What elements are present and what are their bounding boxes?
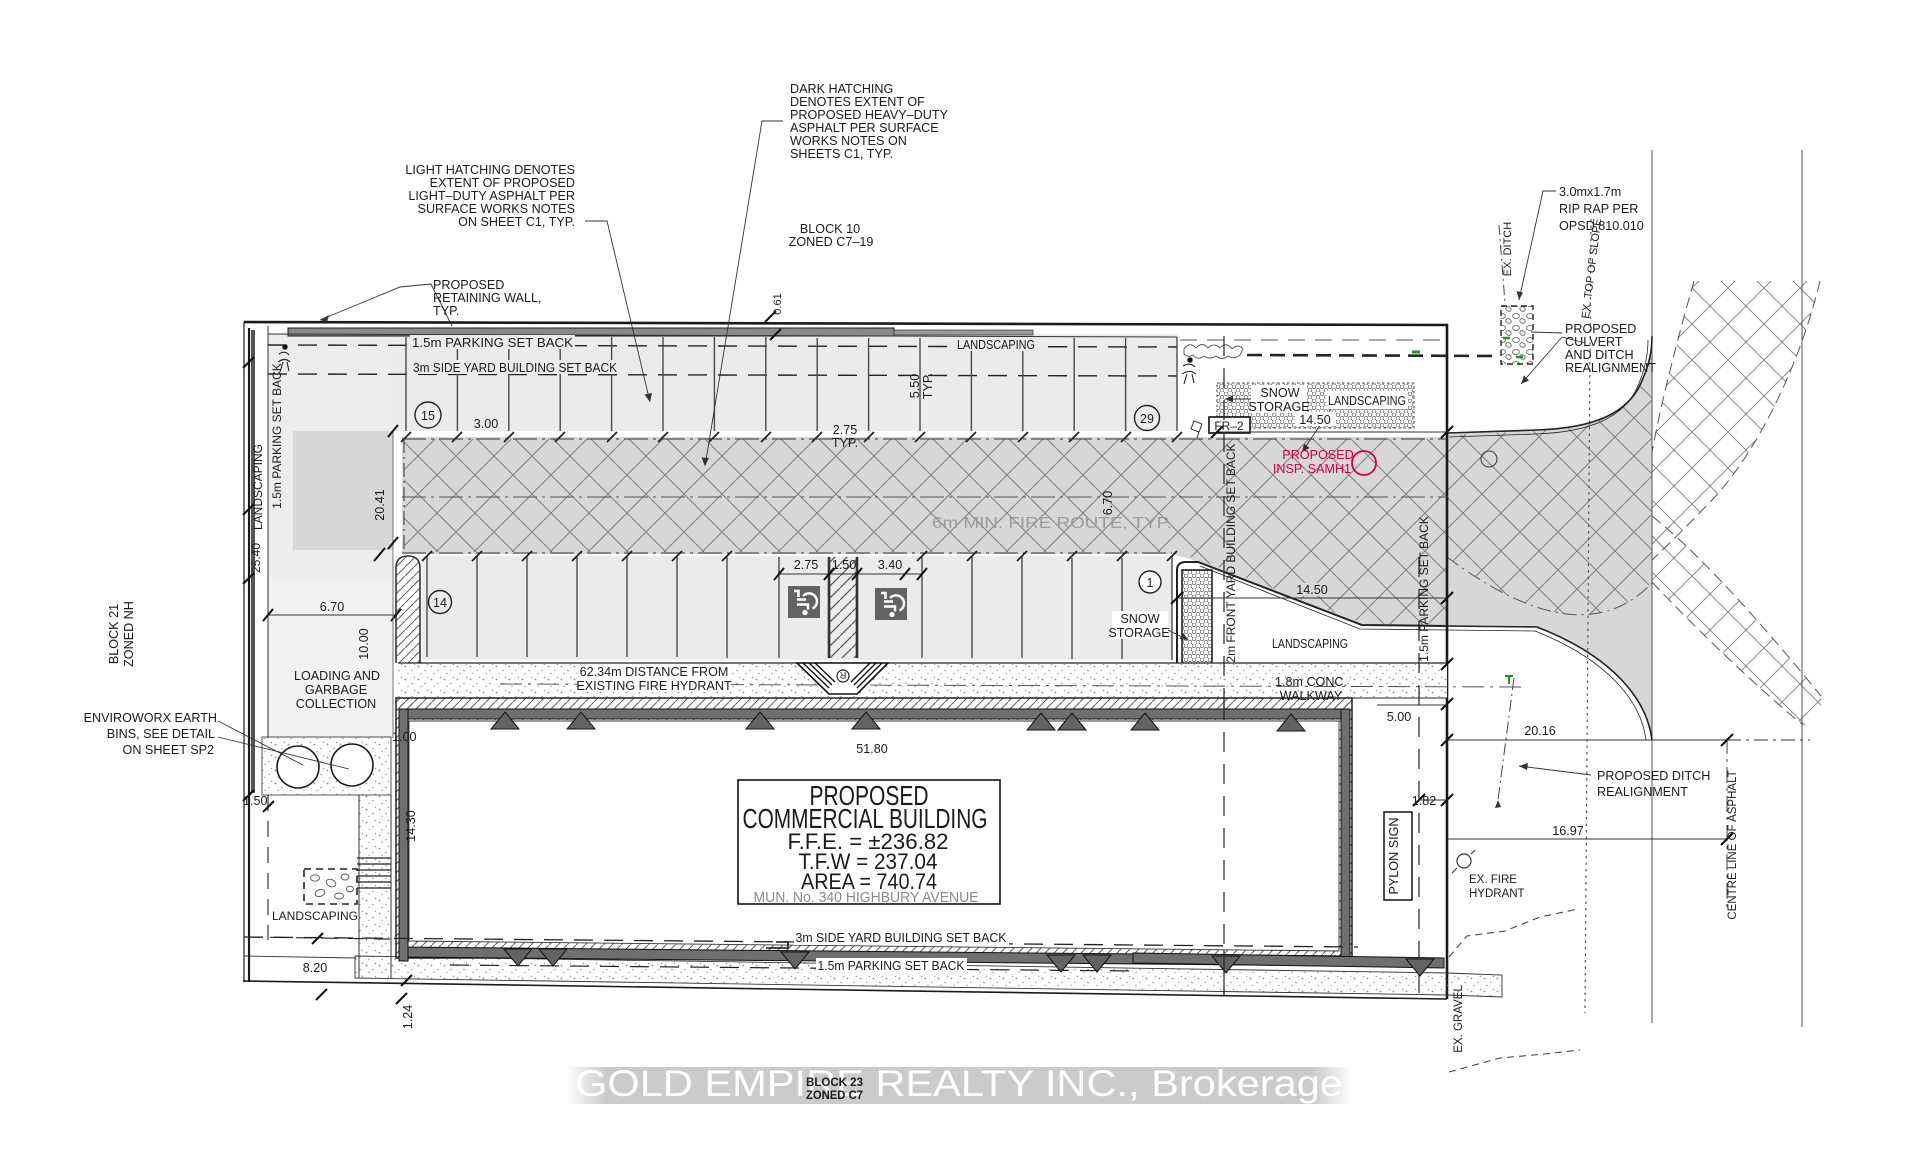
svg-text:LANDSCAPING: LANDSCAPING bbox=[1328, 394, 1406, 408]
svg-text:15: 15 bbox=[421, 409, 435, 423]
svg-text:LIGHT–DUTY ASPHALT PER: LIGHT–DUTY ASPHALT PER bbox=[408, 189, 575, 203]
svg-text:STORAGE: STORAGE bbox=[1248, 400, 1309, 414]
svg-text:CENTRE LINE OF ASPHALT: CENTRE LINE OF ASPHALT bbox=[1727, 770, 1739, 919]
svg-text:LIGHT HATCHING DENOTES: LIGHT HATCHING DENOTES bbox=[405, 163, 575, 177]
svg-text:2m FRONT YARD BUILDING SET: 2m FRONT YARD BUILDING SET BACK bbox=[1224, 443, 1238, 662]
svg-text:REALIGNMENT: REALIGNMENT bbox=[1597, 785, 1688, 799]
svg-text:RETAINING WALL,: RETAINING WALL, bbox=[433, 291, 541, 305]
svg-text:BLOCK 10: BLOCK 10 bbox=[800, 222, 860, 236]
svg-text:ENVIROWORX EARTH: ENVIROWORX EARTH bbox=[84, 711, 217, 725]
svg-text:EXTENT OF PROPOSED: EXTENT OF PROPOSED bbox=[430, 176, 575, 190]
svg-text:EX. DITCH: EX. DITCH bbox=[1502, 222, 1514, 276]
svg-text:20.16: 20.16 bbox=[1524, 724, 1556, 738]
svg-text:62.34m DISTANCE FROM: 62.34m DISTANCE FROM bbox=[580, 665, 729, 679]
svg-text:GARBAGE: GARBAGE bbox=[305, 683, 367, 697]
svg-text:BLOCK 23: BLOCK 23 bbox=[806, 1075, 863, 1089]
svg-text:3m SIDE YARD BUILDING SET: 3m SIDE YARD BUILDING SET BACK bbox=[796, 931, 1008, 945]
svg-text:1.00: 1.00 bbox=[392, 730, 417, 744]
svg-text:5.00: 5.00 bbox=[1387, 710, 1412, 724]
svg-text:FR–2: FR–2 bbox=[1214, 419, 1244, 433]
svg-text:1.5m PARKING SET BACK: 1.5m PARKING SET BACK bbox=[818, 959, 966, 973]
svg-text:14.50: 14.50 bbox=[1296, 583, 1328, 597]
svg-text:20.41: 20.41 bbox=[373, 489, 387, 521]
svg-text:PROPOSED HEAVY–DUTY: PROPOSED HEAVY–DUTY bbox=[790, 108, 949, 122]
svg-text:R: R bbox=[839, 670, 846, 680]
svg-text:EX. GRAVEL: EX. GRAVEL bbox=[1453, 985, 1465, 1053]
svg-text:ZONED NH: ZONED NH bbox=[122, 601, 136, 667]
svg-text:ON SHEET SP2: ON SHEET SP2 bbox=[123, 743, 214, 757]
svg-text:10.00: 10.00 bbox=[357, 628, 371, 660]
svg-text:1.5m PARKING SET BACK: 1.5m PARKING SET BACK bbox=[412, 336, 574, 350]
svg-text:ON SHEET C1, TYP.: ON SHEET C1, TYP. bbox=[458, 215, 575, 229]
svg-text:PROPOSED: PROPOSED bbox=[1282, 448, 1353, 462]
svg-text:WORKS NOTES ON: WORKS NOTES ON bbox=[790, 134, 907, 148]
svg-text:SNOW: SNOW bbox=[1260, 386, 1299, 400]
svg-text:INSP. SAMH1: INSP. SAMH1 bbox=[1273, 462, 1351, 476]
svg-text:1.50: 1.50 bbox=[832, 558, 857, 572]
svg-text:EXISTING FIRE HYDRANT: EXISTING FIRE HYDRANT bbox=[576, 679, 732, 693]
svg-text:2.75: 2.75 bbox=[794, 558, 819, 572]
svg-text:14.50: 14.50 bbox=[1299, 413, 1331, 427]
svg-text:1.50: 1.50 bbox=[243, 794, 268, 808]
svg-text:2.75: 2.75 bbox=[833, 423, 858, 437]
svg-text:ASPHALT PER SURFACE: ASPHALT PER SURFACE bbox=[790, 121, 939, 135]
svg-text:LANDSCAPING: LANDSCAPING bbox=[1272, 637, 1348, 651]
svg-text:0.61: 0.61 bbox=[772, 293, 784, 314]
svg-text:3.0mx1.7m: 3.0mx1.7m bbox=[1559, 185, 1621, 199]
svg-text:DARK HATCHING: DARK HATCHING bbox=[790, 82, 893, 96]
svg-text:GOLD EMPIRE REALTY INC., Broke: GOLD EMPIRE REALTY INC., Brokerage bbox=[575, 1063, 1343, 1104]
svg-text:5.50: 5.50 bbox=[908, 374, 922, 399]
svg-text:14: 14 bbox=[433, 596, 447, 610]
svg-text:TYP.: TYP. bbox=[921, 373, 935, 399]
svg-text:TYP.: TYP. bbox=[832, 436, 858, 450]
svg-text:EX. FIRE: EX. FIRE bbox=[1469, 874, 1517, 886]
svg-text:PROPOSED: PROPOSED bbox=[1565, 322, 1636, 336]
svg-text:1.5m PARKING SET BACK: 1.5m PARKING SET BACK bbox=[270, 363, 284, 509]
svg-text:6m MIN. FIRE ROUTE, TYP.: 6m MIN. FIRE ROUTE, TYP. bbox=[932, 515, 1172, 532]
svg-text:1.5m PARKING SET BACK: 1.5m PARKING SET BACK bbox=[1417, 516, 1431, 662]
svg-text:HYDRANT: HYDRANT bbox=[1469, 888, 1525, 900]
svg-text:CULVERT: CULVERT bbox=[1565, 335, 1623, 349]
svg-text:LANDSCAPING: LANDSCAPING bbox=[251, 444, 265, 530]
svg-text:1.8m CONC.: 1.8m CONC. bbox=[1275, 675, 1347, 689]
svg-text:25.40: 25.40 bbox=[249, 543, 263, 573]
svg-text:1.24: 1.24 bbox=[401, 1005, 415, 1030]
svg-text:16.97: 16.97 bbox=[1552, 824, 1584, 838]
svg-text:WALKWAY: WALKWAY bbox=[1280, 689, 1343, 703]
svg-text:BLOCK 21: BLOCK 21 bbox=[107, 604, 121, 664]
svg-text:8.20: 8.20 bbox=[303, 961, 328, 975]
svg-text:6.70: 6.70 bbox=[320, 600, 345, 614]
svg-text:PROPOSED: PROPOSED bbox=[433, 278, 504, 292]
svg-text:SNOW: SNOW bbox=[1120, 612, 1159, 626]
svg-text:PROPOSED DITCH: PROPOSED DITCH bbox=[1597, 769, 1710, 783]
svg-text:MUN. No. 340 HIGHBURY AVEN: MUN. No. 340 HIGHBURY AVENUE bbox=[754, 890, 979, 906]
svg-text:3.40: 3.40 bbox=[878, 558, 903, 572]
svg-text:51.80: 51.80 bbox=[856, 742, 888, 756]
svg-text:6.70: 6.70 bbox=[1101, 491, 1115, 516]
svg-text:ZONED C7: ZONED C7 bbox=[806, 1088, 863, 1102]
svg-text:LANDSCAPING: LANDSCAPING bbox=[272, 909, 358, 923]
svg-text:ZONED C7–19: ZONED C7–19 bbox=[789, 235, 874, 249]
svg-text:LOADING AND: LOADING AND bbox=[294, 669, 380, 683]
svg-text:SHEETS C1, TYP.: SHEETS C1, TYP. bbox=[790, 147, 893, 161]
svg-text:LANDSCAPING: LANDSCAPING bbox=[957, 338, 1035, 352]
svg-text:BINS, SEE DETAIL: BINS, SEE DETAIL bbox=[107, 727, 215, 741]
svg-text:TYP.: TYP. bbox=[433, 304, 459, 318]
svg-text:RIP RAP PER: RIP RAP PER bbox=[1559, 202, 1638, 216]
svg-text:DENOTES EXTENT OF: DENOTES EXTENT OF bbox=[790, 95, 925, 109]
svg-text:STORAGE: STORAGE bbox=[1108, 626, 1169, 640]
svg-text:COLLECTION: COLLECTION bbox=[296, 697, 376, 711]
svg-text:PYLON SIGN: PYLON SIGN bbox=[1387, 818, 1401, 895]
svg-text:14.30: 14.30 bbox=[404, 810, 418, 842]
svg-text:3.00: 3.00 bbox=[474, 417, 499, 431]
svg-text:29: 29 bbox=[1140, 412, 1154, 426]
svg-text:3m SIDE YARD BUILDING SET: 3m SIDE YARD BUILDING SET BACK bbox=[413, 361, 618, 375]
svg-text:1: 1 bbox=[1147, 576, 1154, 590]
svg-text:AND DITCH: AND DITCH bbox=[1565, 348, 1634, 362]
svg-text:SURFACE WORKS NOTES: SURFACE WORKS NOTES bbox=[418, 202, 575, 216]
svg-text:1.82: 1.82 bbox=[1412, 794, 1437, 808]
svg-text:REALIGNMENT: REALIGNMENT bbox=[1565, 361, 1656, 375]
